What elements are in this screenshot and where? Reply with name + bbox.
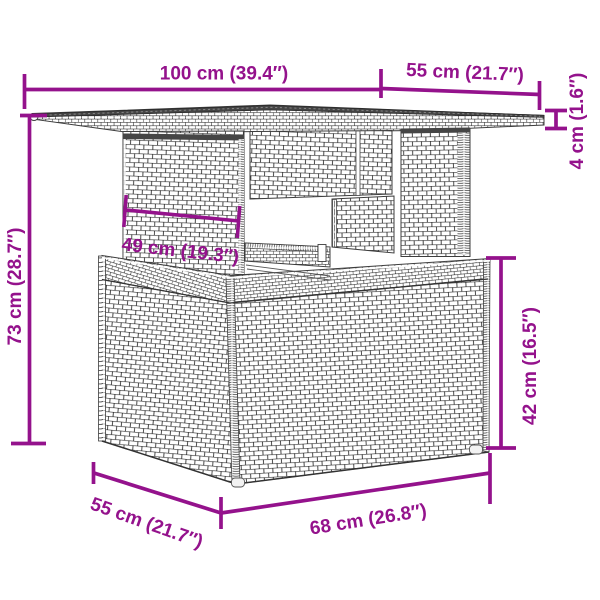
svg-text:4 cm (1.6″): 4 cm (1.6″) bbox=[567, 73, 588, 170]
svg-text:100 cm (39.4″): 100 cm (39.4″) bbox=[160, 64, 288, 85]
svg-text:42 cm (16.5″): 42 cm (16.5″) bbox=[520, 307, 541, 425]
svg-text:73 cm (28.7″): 73 cm (28.7″) bbox=[5, 228, 26, 346]
